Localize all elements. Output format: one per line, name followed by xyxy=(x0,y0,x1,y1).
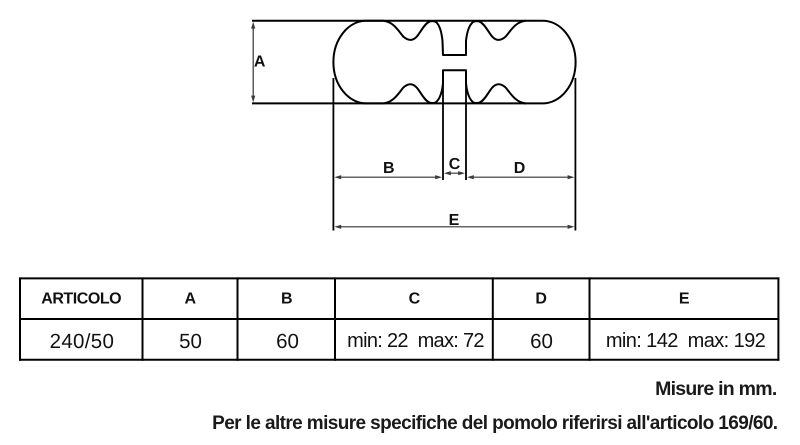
svg-text:E: E xyxy=(679,291,690,308)
svg-text:50: 50 xyxy=(179,330,202,353)
svg-text:240/50: 240/50 xyxy=(50,330,115,353)
svg-text:ARTICOLO: ARTICOLO xyxy=(41,291,121,308)
svg-text:60: 60 xyxy=(530,330,553,353)
svg-text:C: C xyxy=(409,291,421,308)
svg-text:A: A xyxy=(185,291,197,308)
svg-text:A: A xyxy=(254,54,266,71)
svg-text:C: C xyxy=(449,156,461,173)
svg-text:B: B xyxy=(383,160,395,177)
svg-text:D: D xyxy=(535,291,547,308)
svg-text:60: 60 xyxy=(276,330,299,353)
svg-text:B: B xyxy=(281,291,293,308)
svg-text:E: E xyxy=(449,212,460,229)
svg-text:D: D xyxy=(514,160,526,177)
